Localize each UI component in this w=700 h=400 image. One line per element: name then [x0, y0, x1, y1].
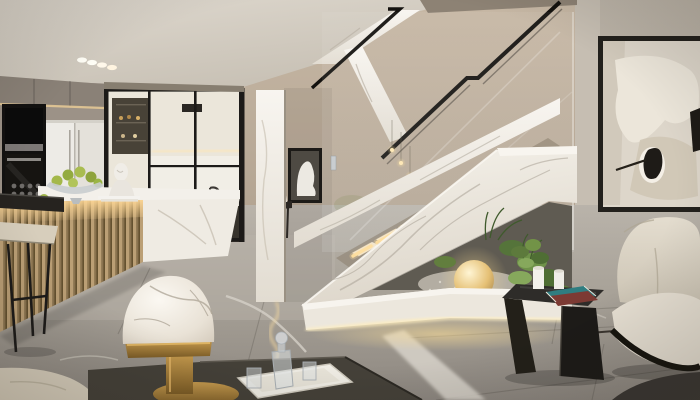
scene-canvas [0, 0, 700, 400]
vignette [0, 0, 700, 400]
interior-render: Modern duplex interior with white marble… [0, 0, 700, 400]
